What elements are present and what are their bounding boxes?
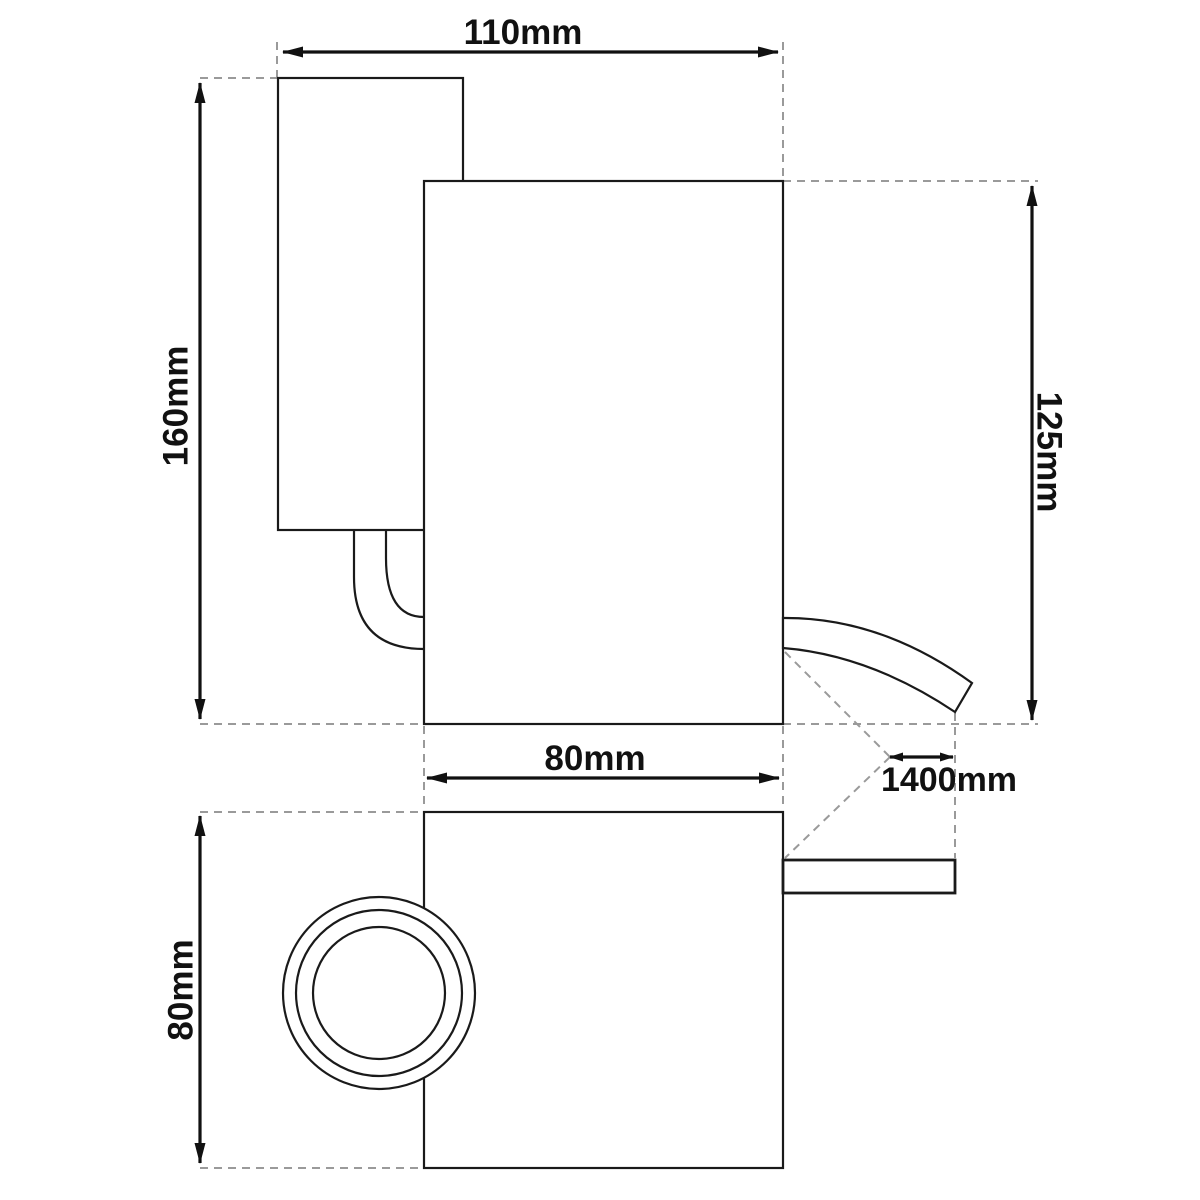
side-view-body (424, 181, 783, 724)
dim-overall-height-label: 160mm (157, 346, 196, 467)
dim-overall-width-label: 110mm (464, 13, 583, 52)
bottom-view-body (424, 812, 783, 1168)
dim-base-height-label: 80mm (162, 939, 201, 1040)
leader-line-cable-bottom-view (785, 757, 890, 858)
side-view-cable (783, 618, 972, 712)
dim-overall-height: 160mm (157, 83, 201, 719)
technical-dimension-drawing: 110mm 160mm 125mm 80mm 1400mm 80mm (0, 0, 1200, 1200)
dim-base-height: 80mm (162, 816, 201, 1163)
dimension-drawing-page: 110mm 160mm 125mm 80mm 1400mm 80mm (0, 0, 1200, 1200)
side-view (278, 78, 972, 724)
dim-body-height: 125mm (1030, 186, 1069, 720)
dim-body-width: 80mm (427, 739, 779, 778)
dim-body-height-label: 125mm (1030, 392, 1069, 513)
bottom-view-cable (783, 860, 955, 893)
dim-cable-length: 1400mm (881, 757, 1017, 799)
bottom-view (283, 812, 955, 1168)
cable-elbow-inner-edge (386, 530, 424, 617)
dim-overall-width: 110mm (283, 13, 778, 52)
dim-body-width-label: 80mm (544, 739, 645, 778)
dim-cable-length-label: 1400mm (881, 761, 1017, 799)
bottom-view-circle-inner (313, 927, 445, 1059)
